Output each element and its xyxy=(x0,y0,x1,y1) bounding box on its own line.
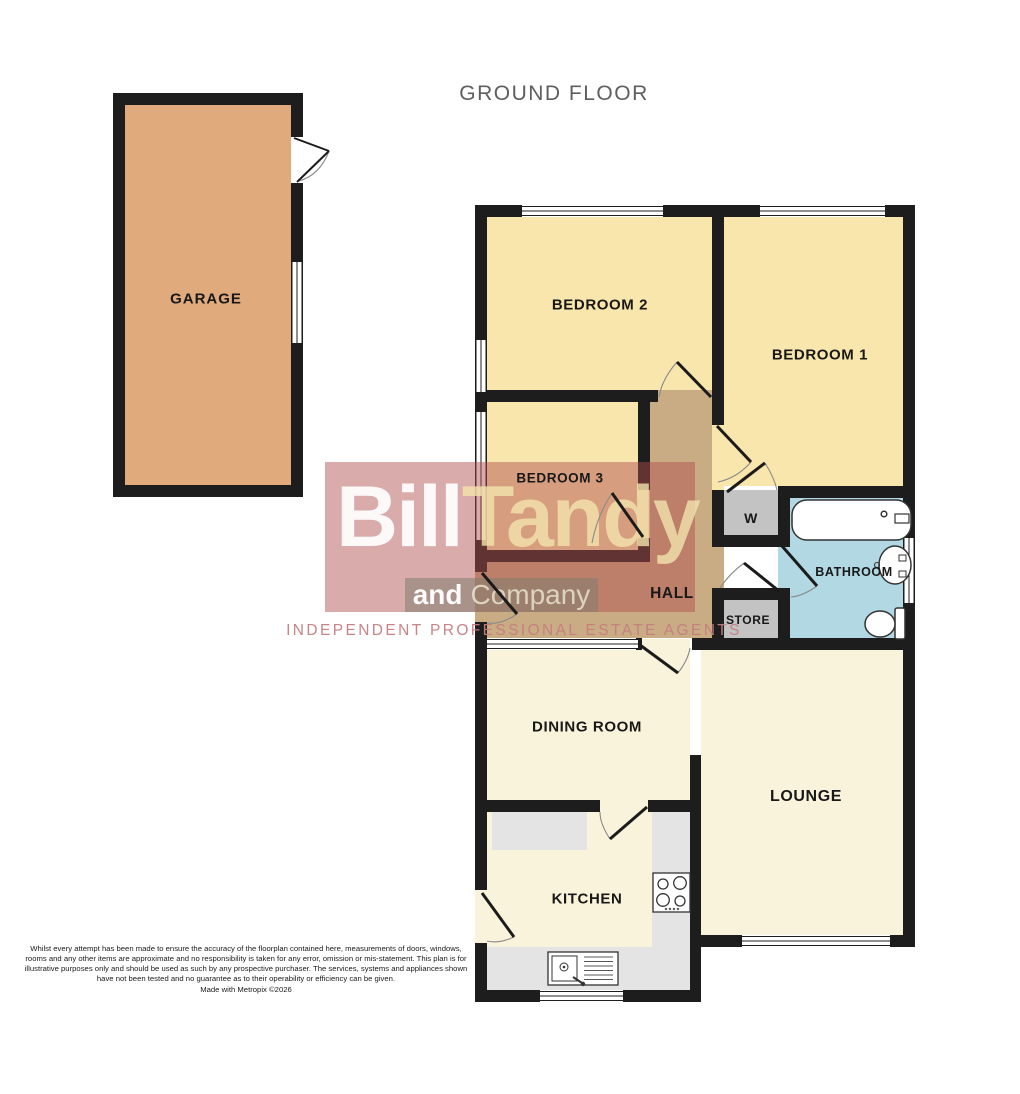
window xyxy=(760,206,885,216)
kitchen-counter-bottom xyxy=(487,947,652,990)
window xyxy=(903,538,915,603)
wall-segment xyxy=(690,755,701,1002)
garage-door-arc xyxy=(299,151,329,181)
wall-segment xyxy=(113,93,125,497)
doorway-bedroom-2 xyxy=(658,390,712,402)
wall-segment xyxy=(663,205,760,217)
window xyxy=(291,262,303,343)
wall-segment xyxy=(483,390,658,402)
doorway-kitchen xyxy=(600,800,648,812)
doorway-hall-dining xyxy=(638,639,690,650)
wall-segment xyxy=(903,603,915,947)
watermark-tagline: INDEPENDENT PROFESSIONAL ESTATE AGENTS xyxy=(286,622,742,640)
label-bedroom-1: BEDROOM 1 xyxy=(772,347,868,364)
wall-segment xyxy=(712,588,790,600)
label-dining: DINING ROOM xyxy=(532,719,642,736)
window xyxy=(487,639,638,649)
floorplan-page: GROUND FLOOR xyxy=(0,0,1020,1094)
wall-segment xyxy=(113,93,303,105)
window xyxy=(522,206,663,216)
wall-segment xyxy=(903,205,915,538)
wall-segment xyxy=(475,622,487,812)
wall-segment xyxy=(475,812,487,890)
label-bedroom-3: BEDROOM 3 xyxy=(516,471,603,486)
watermark-subtitle-company: Company xyxy=(470,581,590,609)
kitchen-counter-right xyxy=(652,812,690,990)
label-store: STORE xyxy=(726,613,770,627)
wall-segment xyxy=(475,800,600,812)
wall-segment xyxy=(623,990,701,1002)
wall-segment xyxy=(291,183,303,262)
wall-segment xyxy=(778,598,790,640)
wall-segment xyxy=(113,485,303,497)
disclaimer: Whilst every attempt has been made to en… xyxy=(20,944,472,995)
metropix-credit: Made with Metropix ©2026 xyxy=(200,985,292,994)
label-bedroom-2: BEDROOM 2 xyxy=(552,297,648,314)
window xyxy=(475,340,487,392)
room-hall-nook xyxy=(712,547,724,588)
wall-segment xyxy=(291,343,303,497)
store-door-leaf xyxy=(744,563,779,591)
watermark-brand-first: Bill xyxy=(336,469,462,565)
wall-segment xyxy=(890,935,915,947)
kitchen-counter-top xyxy=(492,812,587,850)
garage-door-leaf-2 xyxy=(297,151,329,182)
label-garage: GARAGE xyxy=(170,291,242,308)
watermark-subtitle: and Company xyxy=(405,578,598,612)
watermark-brand: BillTandy xyxy=(336,474,699,560)
wall-segment xyxy=(712,397,724,425)
garage-door-leaf xyxy=(294,138,329,151)
wall-segment xyxy=(475,205,487,340)
wall-segment xyxy=(712,217,724,397)
doorway-kitchen-exterior xyxy=(475,890,487,943)
wall-segment xyxy=(778,498,790,545)
label-wardrobe: W xyxy=(744,510,758,526)
label-hall: HALL xyxy=(650,585,694,603)
page-title: GROUND FLOOR xyxy=(459,82,649,106)
garage-door xyxy=(294,138,329,182)
wall-segment xyxy=(475,990,540,1002)
label-kitchen: KITCHEN xyxy=(552,891,623,908)
watermark-subtitle-and: and xyxy=(413,581,463,609)
window xyxy=(742,936,890,946)
doorway-bedroom-1 xyxy=(712,425,724,490)
label-lounge: LOUNGE xyxy=(770,788,842,806)
window xyxy=(540,991,623,1001)
disclaimer-text: Whilst every attempt has been made to en… xyxy=(25,944,468,983)
wall-segment xyxy=(778,486,903,498)
wall-segment xyxy=(291,93,303,137)
wall-segment xyxy=(701,935,742,947)
label-bathroom: BATHROOM xyxy=(815,565,892,579)
